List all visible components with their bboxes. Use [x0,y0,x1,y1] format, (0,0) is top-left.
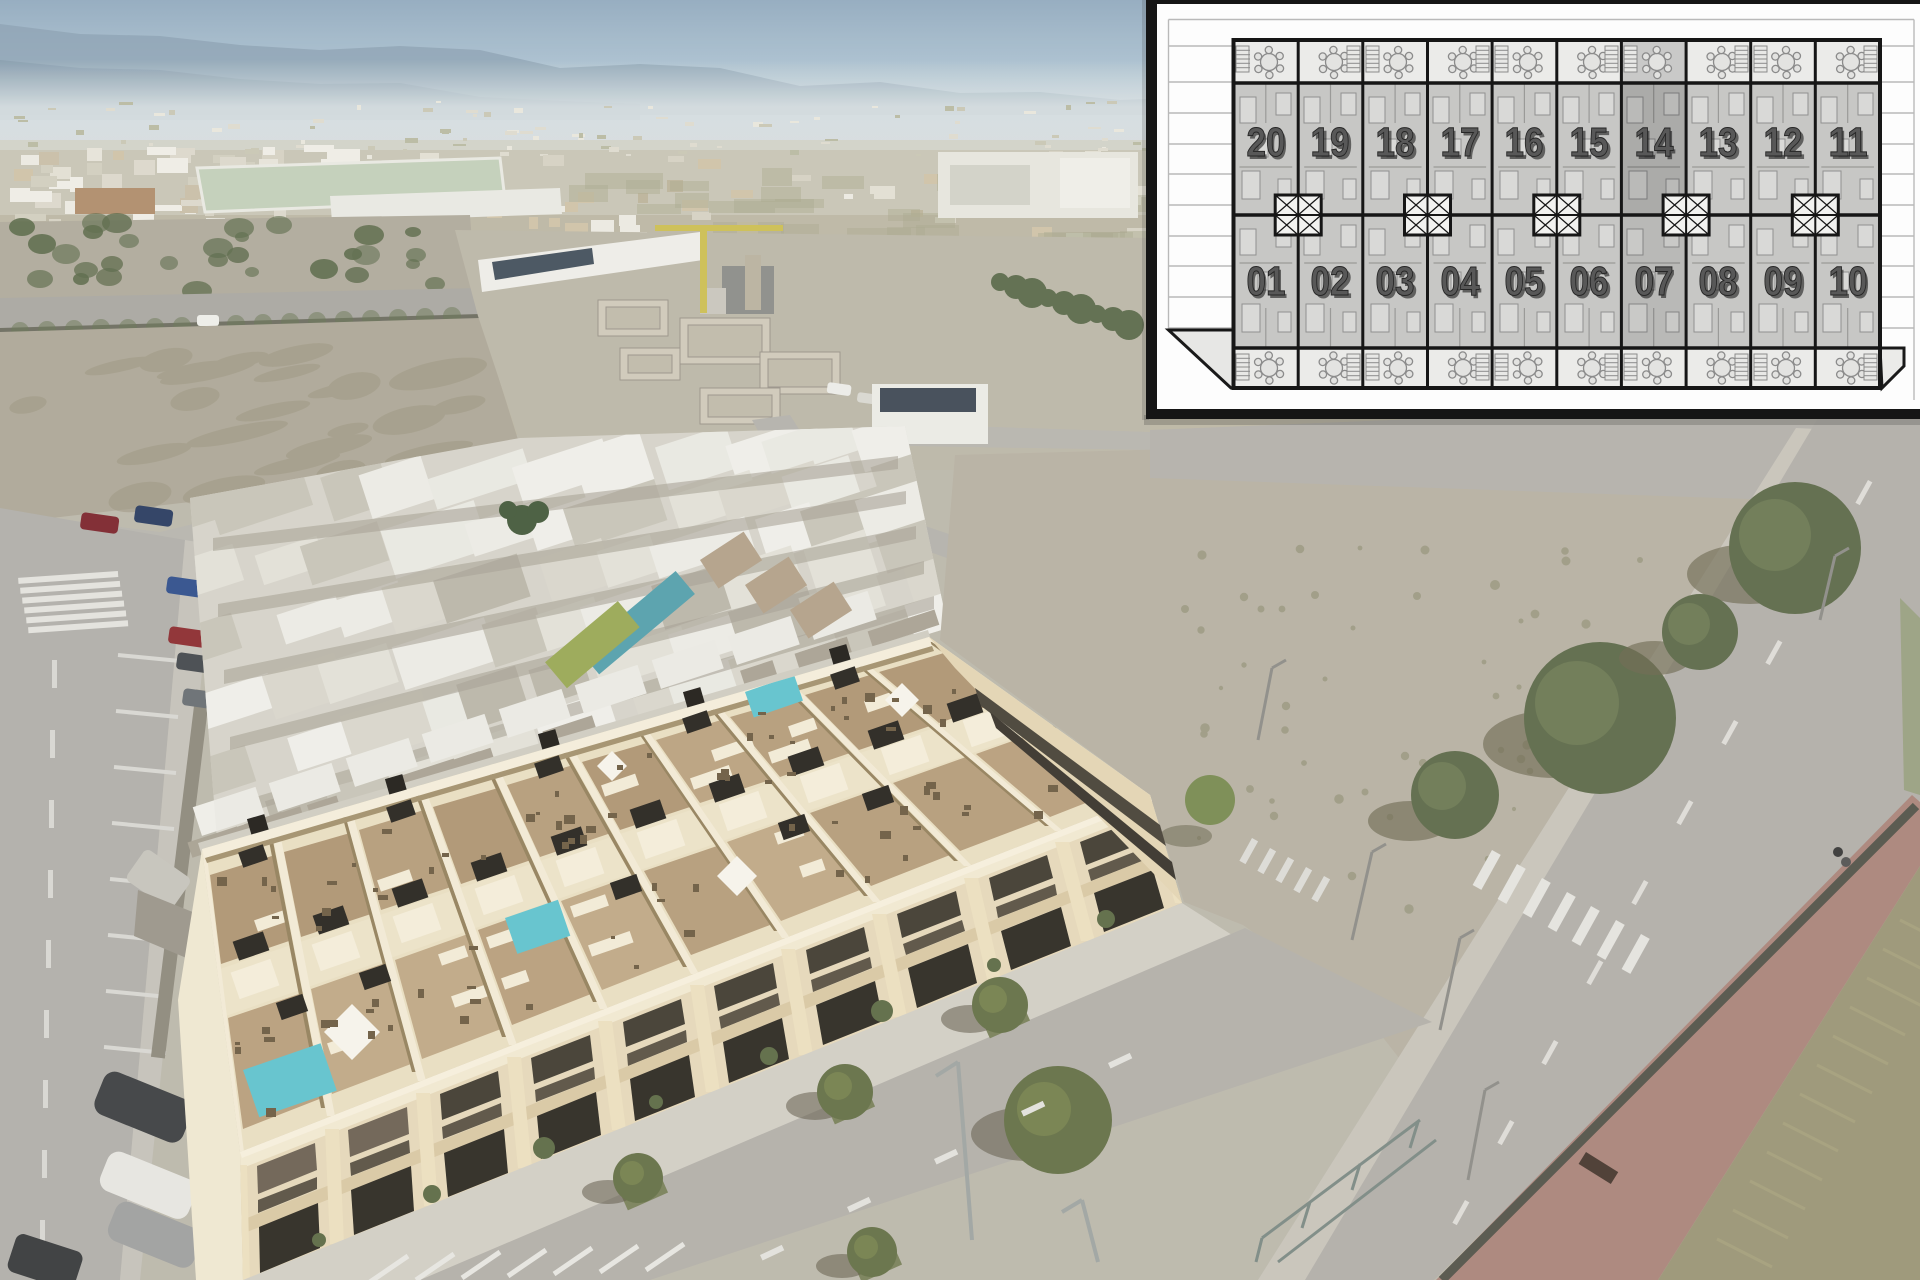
svg-text:06: 06 [1570,258,1609,304]
svg-text:04: 04 [1441,258,1480,304]
svg-text:16: 16 [1505,119,1544,165]
svg-text:13: 13 [1699,119,1738,165]
svg-text:10: 10 [1829,258,1868,304]
svg-text:01: 01 [1247,258,1286,304]
svg-text:14: 14 [1635,119,1674,165]
svg-text:18: 18 [1376,119,1415,165]
svg-text:08: 08 [1699,258,1738,304]
svg-text:09: 09 [1764,258,1803,304]
svg-text:19: 19 [1311,119,1350,165]
svg-text:15: 15 [1570,119,1609,165]
svg-text:05: 05 [1505,258,1544,304]
svg-text:07: 07 [1635,258,1674,304]
svg-text:02: 02 [1311,258,1350,304]
svg-text:03: 03 [1376,258,1415,304]
svg-text:11: 11 [1829,119,1868,165]
svg-text:12: 12 [1764,119,1803,165]
svg-text:17: 17 [1441,119,1480,165]
svg-text:20: 20 [1247,119,1286,165]
